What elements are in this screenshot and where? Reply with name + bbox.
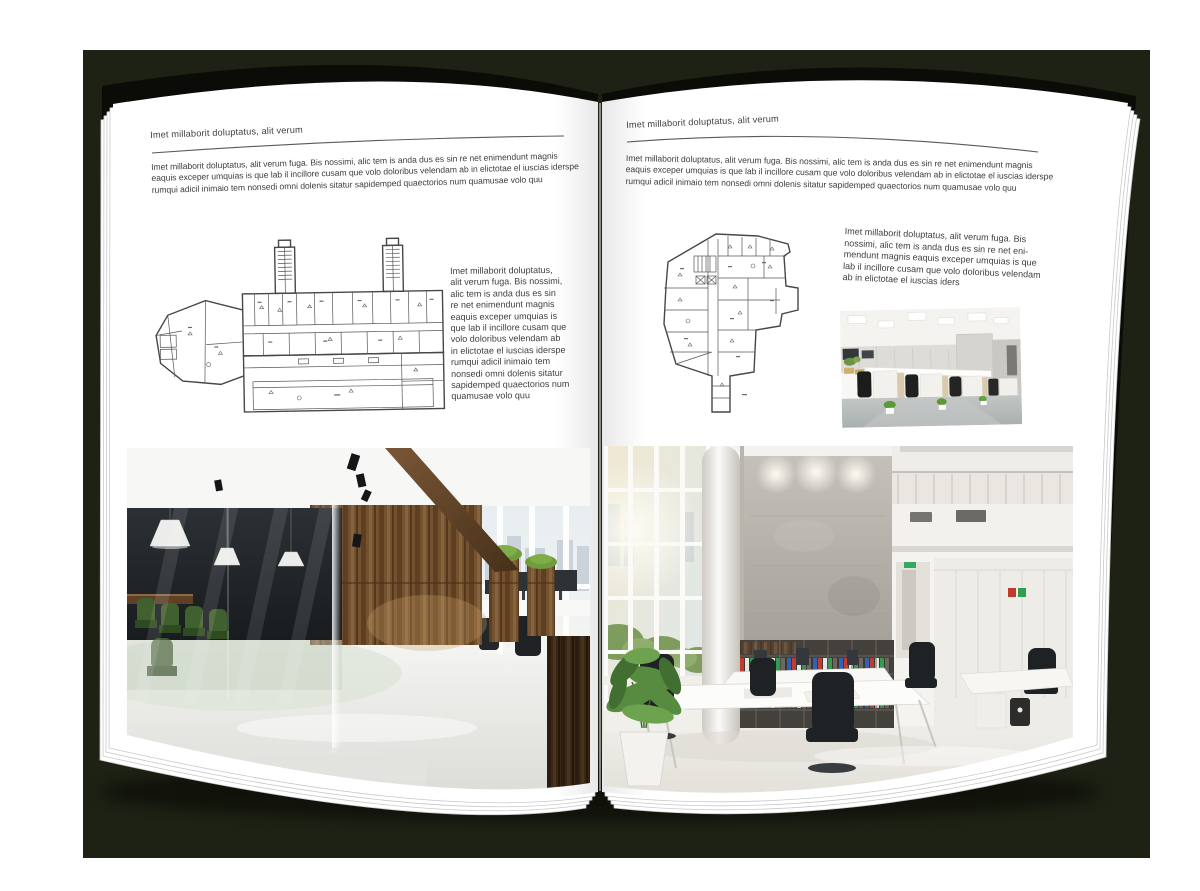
floorplan-right xyxy=(658,226,808,416)
plan-room-markers xyxy=(678,245,774,386)
vent-grille xyxy=(956,510,986,522)
concrete-feature-wall xyxy=(744,450,892,656)
mezzanine xyxy=(892,446,1073,552)
fire-safety-sign xyxy=(1008,588,1016,597)
brochure-mockup-stage: Imet millaborit doluptatus, alit verum I… xyxy=(0,0,1200,891)
floorplan-left xyxy=(146,230,449,425)
photo-office-cubicles xyxy=(840,307,1022,428)
left-page-caption: Imet millaborit doluptatus,alit verum fu… xyxy=(450,265,570,403)
first-aid-sign xyxy=(1018,588,1026,597)
plan-labels xyxy=(680,262,774,395)
plant-pot xyxy=(620,732,668,786)
doorway xyxy=(1007,345,1018,375)
exit-sign xyxy=(904,562,916,568)
right-page-caption: Imet millaborit doluptatus, alit verum f… xyxy=(842,226,1042,293)
